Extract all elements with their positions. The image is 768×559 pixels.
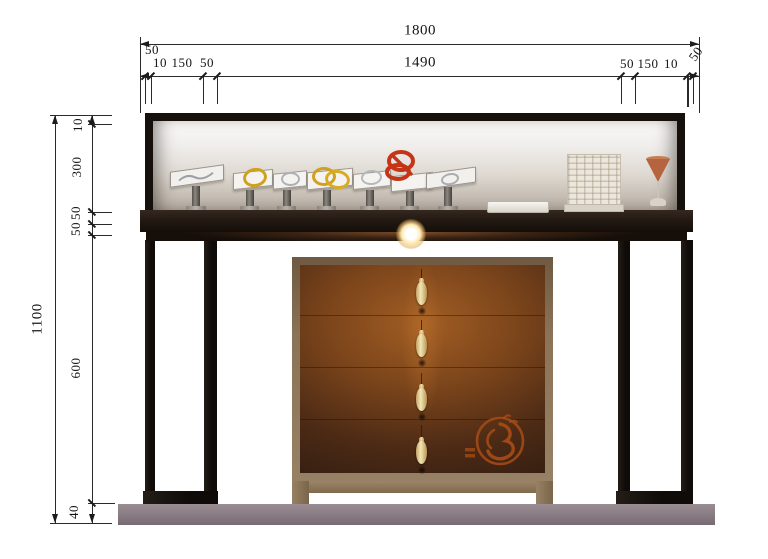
drawer-handle <box>416 334 427 357</box>
cabinet-foot <box>292 481 309 504</box>
cabinet-front <box>300 265 545 473</box>
goblet-cup-icon <box>646 159 670 182</box>
pedestal-base <box>277 206 296 210</box>
silver-bracelet-icon <box>281 172 300 186</box>
dim-label: 50 <box>200 55 214 71</box>
pedestal-base <box>186 206 206 210</box>
pedestal-base <box>240 206 259 210</box>
extension-line <box>50 523 112 524</box>
dim-label: 10 <box>664 56 678 72</box>
dim-label: 50 <box>685 44 706 65</box>
extension-line <box>203 77 204 104</box>
display-pedestal <box>444 187 452 208</box>
extension-line <box>621 77 622 104</box>
handle-shadow <box>418 306 426 316</box>
dim-label: 300 <box>69 157 85 178</box>
right-leg-inner-bar <box>618 240 630 491</box>
dimension-line-1490 <box>140 76 699 77</box>
drawer-cabinet <box>292 257 553 481</box>
dimension-line-segments <box>92 115 93 523</box>
silver-bracelet-icon <box>441 172 459 187</box>
pedestal-base <box>438 206 458 210</box>
display-pedestal <box>192 186 200 208</box>
rack-base <box>564 204 624 212</box>
handle-shadow <box>418 465 426 475</box>
dim-label: 50 <box>620 56 634 72</box>
left-leg-inner-bar <box>204 240 217 491</box>
dim-label-overall-width: 1800 <box>404 23 436 40</box>
arrow-icon <box>52 115 58 124</box>
drawer-handle <box>416 282 427 305</box>
left-leg-foot-bar <box>143 491 218 504</box>
left-leg-outer-bar <box>145 240 155 491</box>
extension-line <box>635 77 636 104</box>
dim-label-span: 1490 <box>404 55 436 72</box>
pedestal-base <box>400 206 419 210</box>
dim-label: 150 <box>172 55 193 71</box>
dim-label: 10 <box>70 118 86 132</box>
dim-label: 600 <box>68 358 84 379</box>
drawer-handle <box>416 388 427 411</box>
drawer-handle <box>416 441 427 464</box>
extension-line <box>693 77 694 104</box>
dim-label: 150 <box>638 56 659 72</box>
dim-label: 40 <box>66 505 82 519</box>
ring-display-rack <box>567 154 621 207</box>
arrow-icon <box>89 514 95 523</box>
dim-label: 50 <box>68 222 84 236</box>
dim-label-overall-height: 1100 <box>30 303 47 334</box>
cabinet-foot <box>536 481 553 504</box>
right-leg-outer-bar <box>681 240 693 491</box>
extension-line <box>50 115 112 116</box>
extension-line <box>151 77 152 104</box>
pedestal-base <box>360 206 379 210</box>
phoenix-seal-icon <box>464 413 530 471</box>
cabinet-bottom-rail <box>304 481 541 493</box>
handle-shadow <box>418 412 426 422</box>
flat-tray <box>487 201 549 213</box>
dimension-line-1800 <box>140 44 699 45</box>
arrow-icon <box>52 514 58 523</box>
right-leg-foot-bar <box>616 491 693 504</box>
handle-shadow <box>418 358 426 368</box>
extension-line <box>145 77 146 104</box>
dim-label: 50 <box>68 206 84 220</box>
pedestal-base <box>317 206 336 210</box>
red-coral-coil-icon <box>382 147 420 185</box>
extension-line <box>687 77 689 107</box>
drawing-canvas: 1800 1490 50 10 150 50 50 150 10 50 <box>0 0 768 559</box>
light-bulb-icon <box>396 219 426 249</box>
plinth-base <box>118 504 715 525</box>
dim-label: 10 <box>153 55 167 71</box>
goblet-foot <box>650 198 666 206</box>
extension-line <box>217 77 218 104</box>
dimension-line-1100 <box>55 115 56 523</box>
